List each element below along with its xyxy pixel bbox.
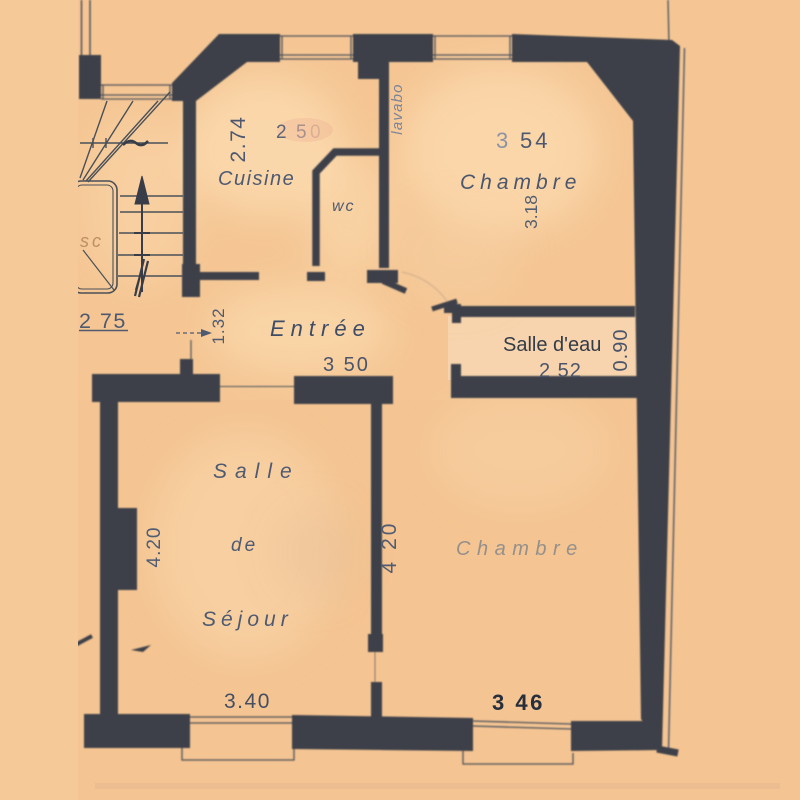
svg-text:2 52: 2 52	[539, 360, 582, 382]
svg-text:4.20: 4.20	[144, 527, 165, 568]
svg-text:3.18: 3.18	[521, 195, 541, 229]
svg-text:3: 3	[496, 128, 511, 153]
svg-text:4 20: 4 20	[378, 521, 401, 574]
svg-text:5: 5	[296, 122, 310, 143]
svg-text:3 50: 3 50	[323, 354, 370, 376]
svg-text:Cuisine: Cuisine	[218, 168, 295, 190]
svg-text:54: 54	[520, 128, 550, 153]
svg-text:lavabo: lavabo	[389, 83, 406, 134]
svg-text:Entrée: Entrée	[270, 316, 371, 341]
svg-text:0.90: 0.90	[610, 329, 632, 372]
svg-text:Chambre: Chambre	[456, 538, 584, 560]
svg-text:2 75: 2 75	[79, 309, 127, 333]
svg-text:Séjour: Séjour	[202, 608, 293, 631]
svg-text:3 46: 3 46	[492, 690, 545, 715]
svg-text:2.74: 2.74	[227, 116, 250, 163]
svg-text:0: 0	[310, 122, 324, 143]
svg-text:Salle d'eau: Salle d'eau	[503, 334, 601, 356]
svg-text:2: 2	[276, 122, 290, 143]
svg-text:Chambre: Chambre	[460, 171, 581, 194]
svg-text:3.40: 3.40	[224, 690, 271, 713]
svg-text:wc: wc	[332, 198, 356, 215]
svg-text:1.32: 1.32	[209, 307, 228, 344]
svg-text:Salle: Salle	[213, 460, 300, 483]
svg-text:de: de	[231, 535, 258, 556]
